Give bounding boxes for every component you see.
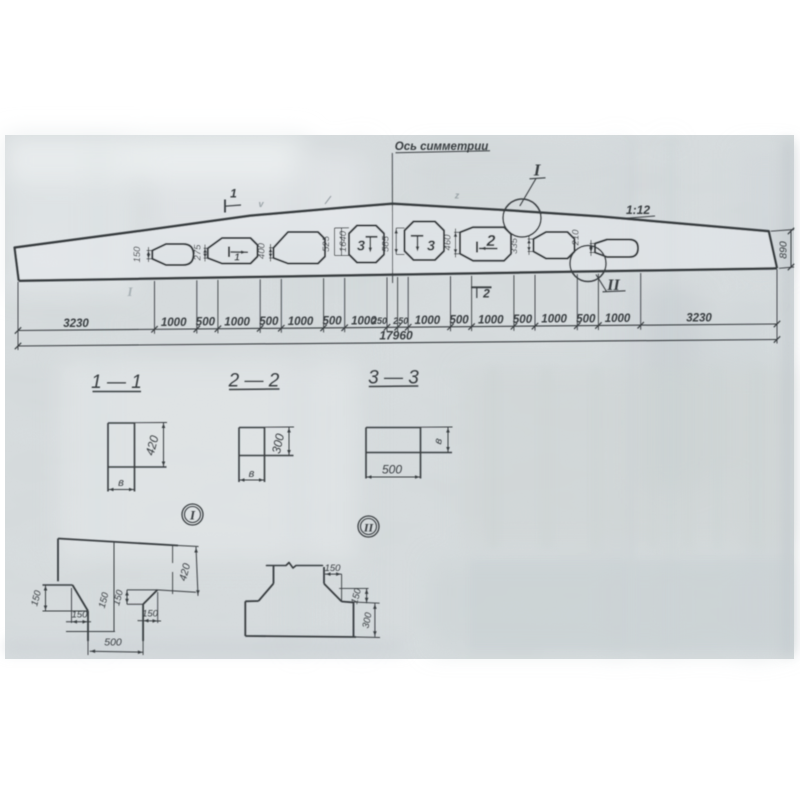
- svg-text:250: 250: [392, 316, 408, 326]
- svg-text:I: I: [126, 284, 133, 299]
- svg-text:II: II: [363, 521, 375, 535]
- svg-text:150: 150: [142, 609, 159, 620]
- svg-text:z: z: [454, 191, 460, 201]
- svg-text:500: 500: [382, 463, 402, 477]
- svg-text:500: 500: [196, 317, 216, 329]
- svg-text:1000: 1000: [288, 316, 314, 328]
- svg-text:3: 3: [427, 239, 435, 255]
- svg-text:400: 400: [257, 242, 268, 259]
- svg-text:275: 275: [193, 244, 204, 262]
- svg-text:3230: 3230: [63, 318, 89, 330]
- svg-text:1640: 1640: [338, 230, 349, 252]
- svg-text:890: 890: [778, 241, 790, 259]
- svg-text:150: 150: [325, 563, 342, 574]
- svg-text:1000: 1000: [161, 317, 187, 329]
- svg-text:500: 500: [104, 637, 122, 649]
- svg-text:1000: 1000: [541, 314, 567, 326]
- svg-text:1: 1: [230, 187, 237, 201]
- svg-text:3: 3: [357, 239, 365, 255]
- svg-text:17960: 17960: [379, 329, 413, 343]
- svg-text:2: 2: [486, 233, 496, 250]
- svg-text:250: 250: [371, 316, 387, 326]
- svg-text:335: 335: [509, 237, 520, 254]
- svg-text:1000: 1000: [605, 313, 631, 325]
- svg-text:I: I: [189, 508, 196, 523]
- svg-text:150: 150: [72, 610, 89, 621]
- svg-text:500: 500: [323, 316, 343, 328]
- svg-text:1: 1: [234, 253, 240, 264]
- svg-text:525: 525: [321, 235, 332, 252]
- svg-text:500: 500: [450, 315, 470, 327]
- svg-text:500: 500: [513, 314, 533, 326]
- svg-text:210: 210: [571, 229, 582, 247]
- svg-text:в: в: [249, 468, 255, 480]
- svg-text:1:12: 1:12: [626, 203, 650, 217]
- svg-text:1000: 1000: [224, 316, 250, 328]
- svg-text:1000: 1000: [415, 315, 441, 327]
- svg-text:150: 150: [132, 246, 143, 263]
- svg-text:460: 460: [443, 234, 454, 251]
- svg-text:2: 2: [482, 287, 490, 301]
- svg-text:500: 500: [259, 316, 279, 328]
- svg-text:в: в: [118, 477, 124, 489]
- svg-text:585: 585: [381, 235, 392, 252]
- svg-text:1 — 1: 1 — 1: [91, 372, 142, 393]
- svg-text:3230: 3230: [686, 313, 712, 325]
- svg-text:500: 500: [576, 313, 596, 325]
- svg-text:1000: 1000: [478, 314, 504, 326]
